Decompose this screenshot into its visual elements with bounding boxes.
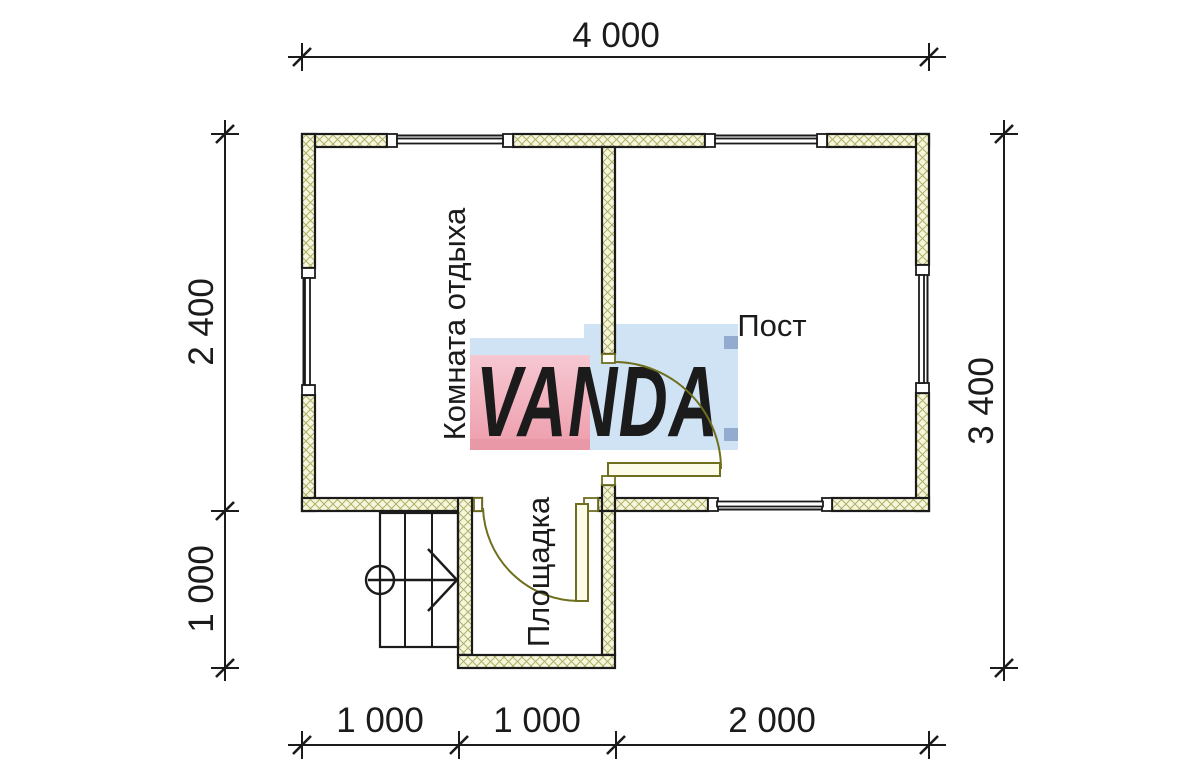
dim-left-value-1: 2 400 <box>182 278 221 366</box>
wall-top-right <box>827 134 929 147</box>
wall-landing-left <box>458 498 472 655</box>
dim-left: 2 400 1 000 <box>182 120 239 681</box>
door-leaf-interior <box>608 463 720 476</box>
dim-top: 4 000 <box>288 16 946 71</box>
dim-right: 3 400 <box>962 120 1018 681</box>
window-bottom <box>708 498 832 511</box>
door-jamb-interior-top <box>602 354 615 363</box>
wall-landing-right <box>602 511 615 655</box>
wall-bottom-left <box>302 498 482 511</box>
dim-left-value-2: 1 000 <box>182 545 221 633</box>
wall-top-middle <box>513 134 705 147</box>
door-jamb-interior-bottom <box>602 476 615 485</box>
door-jamb-entry-left <box>474 498 482 511</box>
dim-right-value: 3 400 <box>962 357 1001 445</box>
window-right <box>916 265 929 393</box>
logo-wordmark: VANDA <box>476 347 720 458</box>
dim-top-value: 4 000 <box>572 16 660 55</box>
room-label-post-room: Пост <box>737 308 806 343</box>
stairs <box>366 513 458 647</box>
window-left <box>302 268 315 395</box>
door-leaf-entry <box>576 504 588 601</box>
dim-bottom: 1 000 1 000 2 000 <box>288 701 946 759</box>
wall-left-upper <box>302 134 315 268</box>
floor-plan-page: VANDA <box>0 0 1200 772</box>
logo-blue-fold-bottom <box>724 428 738 441</box>
window-top-right <box>705 134 827 147</box>
wall-interior-upper <box>602 147 615 354</box>
wall-landing-bottom <box>458 655 615 668</box>
wall-right-upper <box>916 134 929 265</box>
wall-left-lower <box>302 395 315 511</box>
dim-bottom-value-1: 1 000 <box>336 701 424 740</box>
room-label-rest-room: Комната отдыха <box>437 207 472 440</box>
room-label-landing: Площадка <box>521 496 556 647</box>
wall-right-lower <box>916 393 929 511</box>
floor-plan-canvas: VANDA <box>0 0 1200 772</box>
wall-interior-stub <box>602 485 615 511</box>
dim-bottom-value-3: 2 000 <box>728 701 816 740</box>
wall-bottom-right <box>832 498 929 511</box>
dim-bottom-value-2: 1 000 <box>493 701 581 740</box>
logo-blue-fold-top <box>724 336 738 349</box>
window-top-left <box>387 134 513 147</box>
